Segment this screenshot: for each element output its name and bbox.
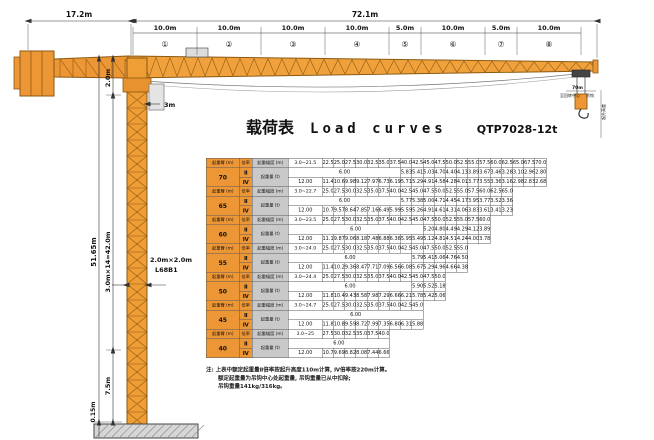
header-load: 起重量 (t) <box>252 225 288 244</box>
page-title: 载荷表 Load curves QTP7028-12t <box>246 114 557 138</box>
radius-range-cell: 3.0~21.5 <box>288 158 322 168</box>
load-cell: 9.98 <box>345 177 356 187</box>
load-cell: 2.96 <box>524 168 535 178</box>
max-load-4-cell: 12.00 <box>288 206 322 216</box>
radius-cell: 60.0 <box>479 187 490 197</box>
radius-cell: 35.0 <box>367 272 378 282</box>
rope-falls-4-cell: Ⅳ <box>239 291 252 301</box>
load-cell: 5.18 <box>434 282 445 292</box>
radius-cell: 55.0 <box>457 244 468 254</box>
jib-length-cell: 45 <box>206 310 239 329</box>
header-rope-falls: 倍率 <box>239 301 252 311</box>
load-cell: 7.85 <box>356 206 367 216</box>
radius-cell: 50.0 <box>445 158 456 168</box>
radius-cell: 27.5 <box>322 329 333 339</box>
radius-cell: 52.5 <box>445 215 456 225</box>
load-cell: 6.08 <box>401 263 412 273</box>
header-radius: 起重幅度 (m) <box>252 187 288 197</box>
load-cell: 4.01 <box>457 177 468 187</box>
max-load-4-cell: 12.00 <box>288 291 322 301</box>
crane-spec-sheet: { "title": { "zh": "载荷表", "en": "Load cu… <box>0 0 654 440</box>
load-cell: 5.95 <box>401 234 412 244</box>
radius-cell: 30.0 <box>356 158 367 168</box>
load-cell: 4.00 <box>468 234 479 244</box>
radius-cell: 37.5 <box>378 301 389 311</box>
load-cell: 6.49 <box>378 206 389 216</box>
radius-cell: 32.5 <box>345 329 356 339</box>
radius-cell: 40.0 <box>389 215 400 225</box>
load-cell: 4.91 <box>423 206 434 216</box>
rope-falls-4-cell: Ⅳ <box>239 348 252 358</box>
jib-length-cell: 40 <box>206 339 239 358</box>
segment-number-badge: ③ <box>289 40 296 49</box>
load-cell: 10.71 <box>322 206 333 216</box>
radius-range-cell: 3.0~24.7 <box>288 301 322 311</box>
header-radius: 起重幅度 (m) <box>252 215 288 225</box>
load-cell: 4.28 <box>445 177 456 187</box>
radius-cell: 47.5 <box>423 187 434 197</box>
rope-falls-4-cell: Ⅳ <box>239 320 252 330</box>
radius-cell: 40.0 <box>389 272 400 282</box>
radius-cell: 27.5 <box>345 158 356 168</box>
header-load: 起重量 (t) <box>252 310 288 329</box>
note-line-1: 注: 上表中额定起重量Ⅱ倍率按起升高度110m计算, Ⅳ倍率按220m计算。 <box>206 366 486 374</box>
rope-falls-2-cell: Ⅱ <box>239 282 252 292</box>
load-cell: 3.61 <box>479 206 490 216</box>
dim-tower-total: 51.65m <box>90 237 98 266</box>
load-cell: 2.98 <box>513 177 524 187</box>
radius-range-cell: 3.0~23.5 <box>288 215 322 225</box>
header-load: 起重量 (t) <box>252 168 288 187</box>
radius-cell: 25.0 <box>322 272 333 282</box>
radius-cell: 45.0 <box>412 244 423 254</box>
load-cell: 6.73 <box>378 177 389 187</box>
radius-cell: 55.0 <box>468 158 479 168</box>
load-cell: 5.88 <box>412 320 423 330</box>
segment-length-label: 5.0m <box>492 24 511 32</box>
header-radius: 起重幅度 (m) <box>252 158 288 168</box>
header-load: 起重量 (t) <box>252 253 288 272</box>
load-cell: 9.12 <box>356 177 367 187</box>
radius-cell: 65.0 <box>501 187 512 197</box>
hook-box-label: 吊钩 <box>586 92 594 98</box>
rope-falls-2-cell: Ⅱ <box>239 225 252 235</box>
load-cell: 11.88 <box>322 320 333 330</box>
load-cell: 3.52 <box>490 196 501 206</box>
radius-cell: 30.0 <box>345 301 356 311</box>
load-cell: 10.82 <box>333 320 344 330</box>
radius-cell: 47.5 <box>423 244 434 254</box>
load-cell: 5.29 <box>423 263 434 273</box>
load-cell: 6.19 <box>389 177 400 187</box>
load-cell: 3.36 <box>490 177 501 187</box>
radius-cell: 47.5 <box>423 272 434 282</box>
header-jib-length: 起重臂 (m) <box>206 244 239 254</box>
radius-cell: 52.5 <box>457 158 468 168</box>
rope-falls-2-cell: Ⅱ <box>239 339 252 349</box>
radius-cell: 50.0 <box>434 244 445 254</box>
header-rope-falls: 倍率 <box>239 215 252 225</box>
radius-cell: 57.5 <box>468 215 479 225</box>
radius-cell: 35.0 <box>356 329 367 339</box>
load-cell: 2.83 <box>524 177 535 187</box>
header-jib-length: 起重臂 (m) <box>206 272 239 282</box>
load-cell: 7.98 <box>367 291 378 301</box>
max-load-2-cell: 6.00 <box>288 339 389 349</box>
load-cell: 10.68 <box>333 177 344 187</box>
radius-cell: 32.5 <box>356 301 367 311</box>
load-cell: 4.50 <box>457 253 468 263</box>
load-cell: 4.76 <box>445 253 456 263</box>
note-line-3: 吊钩重量141kg/316kg。 <box>218 383 486 391</box>
header-rope-falls: 倍率 <box>239 187 252 197</box>
load-cell: 3.28 <box>501 168 512 178</box>
max-load-4-cell: 12.00 <box>288 320 322 330</box>
radius-cell: 37.5 <box>378 244 389 254</box>
radius-cell: 27.5 <box>333 301 344 311</box>
load-cell: 8.58 <box>356 291 367 301</box>
segment-number-badge: ⑤ <box>401 40 408 49</box>
load-cell: 5.49 <box>412 234 423 244</box>
load-cell: 4.58 <box>434 177 445 187</box>
radius-cell: 40.0 <box>389 301 400 311</box>
radius-cell: 35.0 <box>378 158 389 168</box>
load-cell: 3.89 <box>468 168 479 178</box>
load-cell: 6.66 <box>378 348 389 358</box>
load-cell: 4.81 <box>434 234 445 244</box>
header-jib-length: 起重臂 (m) <box>206 158 239 168</box>
load-cell: 5.29 <box>412 177 423 187</box>
header-rope-falls: 倍率 <box>239 272 252 282</box>
dim-mast-size: 2.0m×2.0m <box>150 256 192 264</box>
radius-cell: 30.0 <box>345 215 356 225</box>
load-cell: 5.59 <box>401 206 412 216</box>
max-load-2-cell: 6.00 <box>288 253 412 263</box>
load-cell: 4.70 <box>434 168 445 178</box>
radius-cell: 47.5 <box>423 215 434 225</box>
foundation <box>94 424 204 438</box>
trolley <box>572 70 590 77</box>
rope-falls-2-cell: Ⅱ <box>239 253 252 263</box>
max-load-2-cell: 6.00 <box>288 225 423 235</box>
load-cell: 3.78 <box>479 234 490 244</box>
tower-mast <box>123 58 164 428</box>
rope-falls-4-cell: Ⅳ <box>239 206 252 216</box>
header-jib-length: 起重臂 (m) <box>206 329 239 339</box>
radius-cell: 30.0 <box>345 244 356 254</box>
radius-cell: 62.5 <box>490 187 501 197</box>
radius-cell: 40.0 <box>389 244 400 254</box>
title-english: Load curves <box>310 121 447 137</box>
load-cell: 2.80 <box>535 168 546 178</box>
load-cell: 9.87 <box>333 234 344 244</box>
load-cell: 7.48 <box>367 234 378 244</box>
load-cell: 3.77 <box>468 177 479 187</box>
load-cell: 3.23 <box>501 206 512 216</box>
radius-cell: 42.5 <box>401 272 412 282</box>
load-cell: 4.13 <box>457 168 468 178</box>
load-cell: 7.97 <box>367 177 378 187</box>
radius-cell: 42.5 <box>401 187 412 197</box>
radius-cell: 37.5 <box>378 215 389 225</box>
dim-head-width: 3m <box>164 101 176 109</box>
radius-cell: 30.0 <box>345 272 356 282</box>
load-cell: 8.72 <box>356 320 367 330</box>
load-cell: 5.83 <box>401 168 412 178</box>
load-cell: 5.67 <box>412 263 423 273</box>
rope-falls-2-cell: Ⅱ <box>239 310 252 320</box>
segment-length-label: 10.0m <box>346 24 369 32</box>
load-cell: 3.46 <box>490 168 501 178</box>
load-cell: 4.49 <box>445 225 456 235</box>
load-cell: 6.66 <box>389 291 400 301</box>
header-jib-length: 起重臂 (m) <box>206 187 239 197</box>
load-cell: 11.48 <box>322 263 333 273</box>
counter-jib <box>54 56 138 78</box>
radius-range-cell: 3.0~22.7 <box>288 187 322 197</box>
segment-length-label: 10.0m <box>442 24 465 32</box>
load-cell: 5.78 <box>412 291 423 301</box>
load-cell: 4.61 <box>434 206 445 216</box>
radius-cell: 40.0 <box>378 329 389 339</box>
radius-cell: 52.5 <box>445 244 456 254</box>
radius-cell: 50.0 <box>434 187 445 197</box>
load-cell: 7.16 <box>367 206 378 216</box>
load-cell: 3.55 <box>479 177 490 187</box>
dim-mast-type: L68B1 <box>155 266 178 274</box>
load-cell: 4.24 <box>457 234 468 244</box>
load-cell: 5.71 <box>401 177 412 187</box>
load-cell: 5.79 <box>412 253 423 263</box>
slewing-unit <box>123 78 151 92</box>
load-cell: 5.90 <box>412 282 423 292</box>
load-cell: 9.06 <box>345 234 356 244</box>
segment-number-badge: ① <box>161 40 168 49</box>
dim-standard-sections: 3.0m×14=42.0m <box>104 231 112 292</box>
max-load-2-cell: 6.00 <box>288 310 423 320</box>
radius-cell: 25.0 <box>333 158 344 168</box>
load-cell: 3.95 <box>468 196 479 206</box>
radius-cell: 57.5 <box>479 158 490 168</box>
radius-cell: 25.0 <box>322 301 333 311</box>
rope-falls-2-cell: Ⅱ <box>239 168 252 178</box>
load-cell: 8.82 <box>345 348 356 358</box>
load-cell: 5.06 <box>434 253 445 263</box>
load-cell: 7.99 <box>367 320 378 330</box>
header-load: 起重量 (t) <box>252 196 288 215</box>
max-load-2-cell: 6.00 <box>288 168 400 178</box>
radius-cell: 52.5 <box>445 187 456 197</box>
header-jib-length: 起重臂 (m) <box>206 301 239 311</box>
radius-cell: 40.0 <box>389 187 400 197</box>
segment-length-label: 10.0m <box>538 24 561 32</box>
segment-number-badge: ⑥ <box>449 40 456 49</box>
load-curves-table: 起重臂 (m)倍率起重幅度 (m)3.0~21.522.525.027.530.… <box>206 158 546 358</box>
radius-cell: 70.0 <box>535 158 546 168</box>
load-cell: 9.43 <box>345 291 356 301</box>
radius-cell: 27.5 <box>333 215 344 225</box>
radius-cell: 35.0 <box>367 215 378 225</box>
load-cell: 4.12 <box>468 225 479 235</box>
radius-cell: 42.5 <box>401 215 412 225</box>
load-cell: 9.36 <box>345 263 356 273</box>
load-cell: 6.31 <box>401 320 412 330</box>
load-cell: 11.40 <box>322 177 333 187</box>
segment-number-badge: ⑦ <box>497 40 504 49</box>
notes: 注: 上表中额定起重量Ⅱ倍率按起升高度110m计算, Ⅳ倍率按220m计算。额定… <box>206 366 486 391</box>
load-cell: 4.31 <box>445 206 456 216</box>
radius-cell: 50.0 <box>434 272 445 282</box>
load-cell: 4.40 <box>445 168 456 178</box>
radius-range-cell: 3.0~25 <box>288 329 322 339</box>
load-cell: 3.41 <box>490 206 501 216</box>
load-cell: 5.06 <box>434 291 445 301</box>
header-radius: 起重幅度 (m) <box>252 244 288 254</box>
load-cell: 4.17 <box>457 196 468 206</box>
radius-cell: 60.0 <box>479 215 490 225</box>
radius-cell: 55.0 <box>457 187 468 197</box>
header-jib-length: 起重臂 (m) <box>206 215 239 225</box>
dim-hook-radius: 70m <box>572 85 583 91</box>
load-cell: 6.21 <box>401 291 412 301</box>
radius-cell: 47.5 <box>434 158 445 168</box>
jib <box>128 56 598 78</box>
load-cell: 4.06 <box>457 206 468 216</box>
radius-cell: 45.0 <box>412 301 423 311</box>
max-load-4-cell: 12.00 <box>288 234 322 244</box>
load-cell: 6.36 <box>389 234 400 244</box>
radius-cell: 35.0 <box>367 187 378 197</box>
radius-cell: 32.5 <box>356 215 367 225</box>
load-cell: 10.25 <box>333 263 344 273</box>
radius-cell: 45.0 <box>412 187 423 197</box>
load-table-container: 起重臂 (m)倍率起重幅度 (m)3.0~21.522.525.027.530.… <box>206 158 547 358</box>
jib-length-cell: 60 <box>206 225 239 244</box>
max-load-2-cell: 6.00 <box>288 282 412 292</box>
segment-length-label: 5.0m <box>396 24 415 32</box>
load-cell: 10.44 <box>333 291 344 301</box>
load-cell: 4.29 <box>457 225 468 235</box>
climbing-cage <box>149 84 164 110</box>
lift-height-label: 起升高度 <box>600 104 606 120</box>
load-cell: 5.41 <box>423 253 434 263</box>
header-radius: 起重幅度 (m) <box>252 301 288 311</box>
header-rope-falls: 倍率 <box>239 329 252 339</box>
rope-falls-4-cell: Ⅳ <box>239 234 252 244</box>
radius-cell: 27.5 <box>333 244 344 254</box>
load-cell: 11.15 <box>322 234 333 244</box>
hook-icon <box>579 109 588 118</box>
segment-number-badge: ④ <box>353 40 360 49</box>
header-load: 起重量 (t) <box>252 339 288 358</box>
radius-cell: 32.5 <box>356 272 367 282</box>
load-cell: 9.59 <box>345 320 356 330</box>
load-cell: 4.45 <box>445 196 456 206</box>
load-cell: 6.80 <box>389 320 400 330</box>
load-cell: 5.38 <box>412 196 423 206</box>
radius-cell: 45.0 <box>412 215 423 225</box>
radius-cell: 65.0 <box>513 158 524 168</box>
load-cell: 3.83 <box>468 206 479 216</box>
dim-foundation: 0.15m <box>90 401 97 422</box>
radius-cell: 42.5 <box>412 158 423 168</box>
radius-cell: 25.0 <box>322 244 333 254</box>
radius-cell: 25.0 <box>322 215 333 225</box>
radius-cell: 37.5 <box>378 272 389 282</box>
load-cell: 3.77 <box>479 196 490 206</box>
load-cell: 5.00 <box>423 196 434 206</box>
radius-range-cell: 3.0~24.4 <box>288 272 322 282</box>
load-cell: 4.71 <box>434 196 445 206</box>
header-radius: 起重幅度 (m) <box>252 272 288 282</box>
hook-center-label: 至回转中心 <box>560 92 580 98</box>
rope-falls-2-cell: Ⅱ <box>239 196 252 206</box>
load-cell: 7.44 <box>367 348 378 358</box>
dim-base-section: 7.5m <box>104 377 112 396</box>
load-cell: 9.69 <box>333 348 344 358</box>
radius-cell: 42.5 <box>401 244 412 254</box>
radius-cell: 37.5 <box>367 329 378 339</box>
radius-cell: 40.0 <box>401 158 412 168</box>
max-load-4-cell: 12.00 <box>288 177 322 187</box>
radius-cell: 50.0 <box>434 215 445 225</box>
segment-number-badge: ② <box>225 40 232 49</box>
title-chinese: 载荷表 <box>246 114 294 138</box>
radius-cell: 37.5 <box>378 187 389 197</box>
load-cell: 11.87 <box>322 291 333 301</box>
load-cell: 8.08 <box>356 348 367 358</box>
load-cell: 7.35 <box>378 320 389 330</box>
load-cell: 7.09 <box>378 263 389 273</box>
load-cell: 4.96 <box>434 263 445 273</box>
load-cell: 4.80 <box>434 225 445 235</box>
rope-falls-4-cell: Ⅳ <box>239 177 252 187</box>
load-cell: 5.52 <box>423 282 434 292</box>
load-cell: 8.47 <box>356 263 367 273</box>
radius-cell: 32.5 <box>367 158 378 168</box>
load-cell: 3.10 <box>513 168 524 178</box>
radius-cell: 37.5 <box>389 158 400 168</box>
max-load-4-cell: 12.00 <box>288 348 322 358</box>
load-cell: 4.66 <box>445 263 456 273</box>
radius-cell: 45.0 <box>412 272 423 282</box>
load-cell: 3.89 <box>479 225 490 235</box>
radius-cell: 30.0 <box>345 187 356 197</box>
radius-cell: 35.0 <box>367 244 378 254</box>
radius-cell: 67.5 <box>524 158 535 168</box>
header-rope-falls: 倍率 <box>239 244 252 254</box>
max-load-4-cell: 12.00 <box>288 263 322 273</box>
radius-cell: 55.0 <box>457 215 468 225</box>
radius-cell: 60.0 <box>490 158 501 168</box>
radius-cell: 32.5 <box>356 187 367 197</box>
radius-range-cell: 3.0~24.0 <box>288 244 322 254</box>
load-cell: 4.38 <box>457 263 468 273</box>
segment-length-label: 10.0m <box>282 24 305 32</box>
load-cell: 5.41 <box>412 168 423 178</box>
load-cell: 10.73 <box>322 348 333 358</box>
load-cell: 6.56 <box>389 263 400 273</box>
radius-cell: 32.5 <box>356 244 367 254</box>
load-cell: 3.36 <box>501 196 512 206</box>
header-rope-falls: 倍率 <box>239 158 252 168</box>
load-cell: 8.64 <box>345 206 356 216</box>
radius-cell: 27.5 <box>333 187 344 197</box>
max-load-2-cell: 6.00 <box>288 196 400 206</box>
header-load: 起重量 (t) <box>252 282 288 301</box>
radius-cell: 27.5 <box>333 272 344 282</box>
load-cell: 5.99 <box>389 206 400 216</box>
